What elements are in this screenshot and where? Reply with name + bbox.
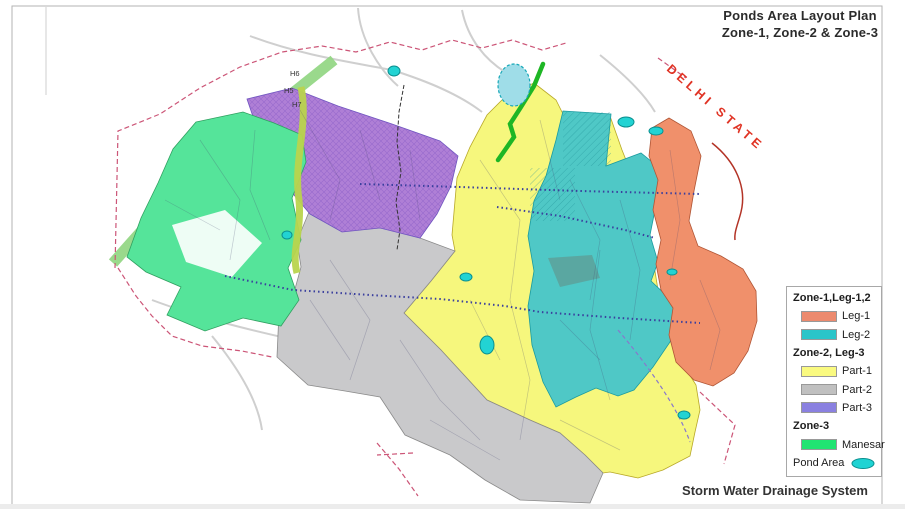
part1-swatch (801, 366, 837, 377)
leg1-swatch (801, 311, 837, 322)
legend-label-part3: Part-3 (842, 402, 872, 414)
legend-label-manesar: Manesar (842, 439, 885, 451)
leg2-swatch (801, 329, 837, 340)
drawing-system-label: Storm Water Drainage System (655, 483, 895, 498)
sector-label-h7: H7 (292, 100, 302, 109)
legend-box: Zone-1,Leg-1,2 Leg-1 Leg-2 Zone-2, Leg-3… (786, 286, 882, 477)
legend-header-zone3: Zone-3 (793, 420, 876, 432)
pond-area-swatch (849, 457, 877, 470)
legend-label-pond-area: Pond Area (793, 457, 844, 469)
legend-row-part2: Part-2 (793, 384, 876, 396)
map-title-line2: Zone-1, Zone-2 & Zone-3 (688, 25, 905, 42)
map-title: Ponds Area Layout Plan Zone-1, Zone-2 & … (688, 8, 905, 42)
legend-label-leg1: Leg-1 (842, 310, 870, 322)
large-pond (498, 64, 530, 106)
map-title-line1: Ponds Area Layout Plan (688, 8, 905, 25)
leg2-hatch-a (563, 112, 611, 166)
legend-header-zone2: Zone-2, Leg-3 (793, 347, 876, 359)
legend-row-leg2: Leg-2 (793, 329, 876, 341)
legend-row-manesar: Manesar (793, 439, 876, 451)
map-canvas: H6 H5 H7 DELHI STATE (0, 0, 905, 509)
legend-row-part1: Part-1 (793, 365, 876, 377)
legend-row-part3: Part-3 (793, 402, 876, 414)
leg2-hatch-b (530, 168, 575, 221)
ponds-layout-plan-page: H6 H5 H7 DELHI STATE Ponds Area Layout P… (0, 0, 905, 509)
part2-swatch (801, 384, 837, 395)
legend-label-part2: Part-2 (842, 384, 872, 396)
legend-label-part1: Part-1 (842, 365, 872, 377)
sheet-bottom-edge (0, 504, 905, 509)
part3-swatch (801, 402, 837, 413)
sector-label-h5: H5 (284, 86, 294, 95)
sector-label-h6: H6 (290, 69, 300, 78)
legend-row-pond-area: Pond Area (793, 457, 876, 470)
manesar-swatch (801, 439, 837, 450)
legend-row-leg1: Leg-1 (793, 310, 876, 322)
legend-header-zone1: Zone-1,Leg-1,2 (793, 292, 876, 304)
legend-label-leg2: Leg-2 (842, 329, 870, 341)
